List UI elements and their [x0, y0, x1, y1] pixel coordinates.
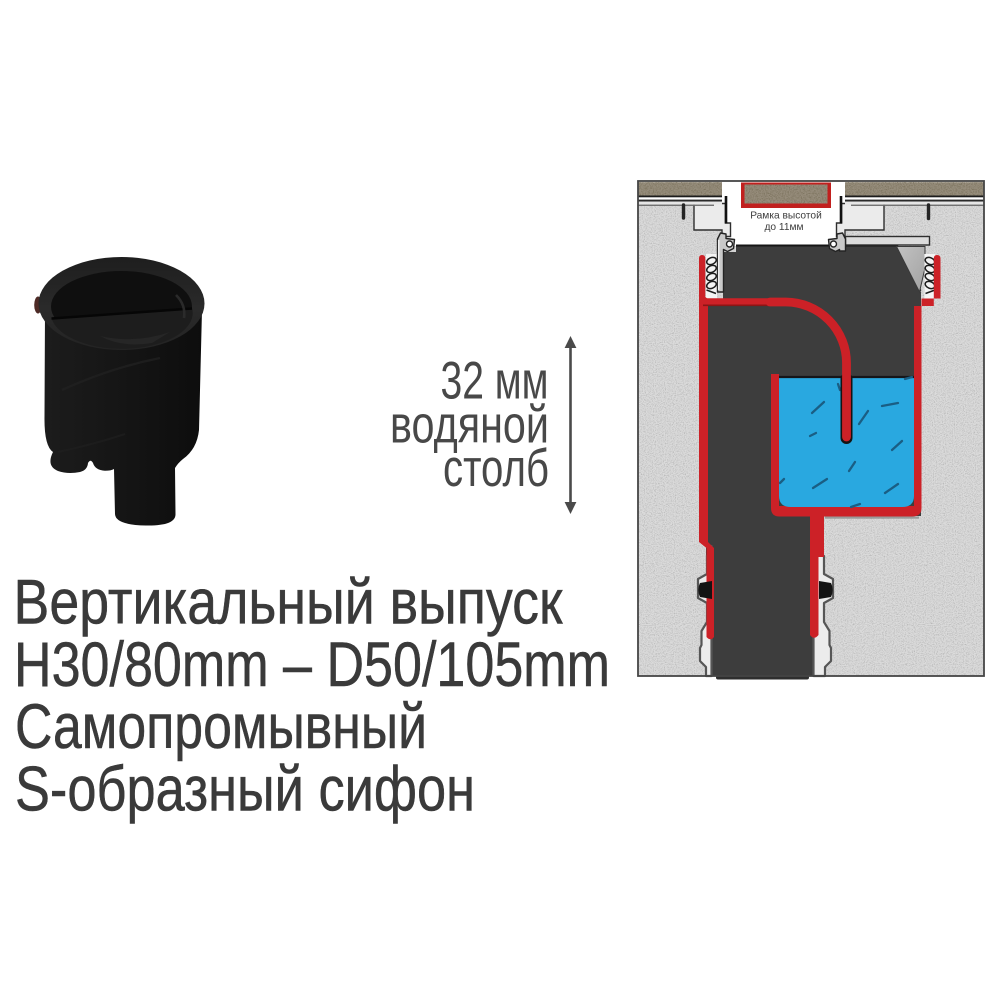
svg-text:S-образный сифон: S-образный сифон	[15, 755, 475, 825]
svg-text:столб: столб	[443, 439, 549, 498]
svg-text:H30/80mm – D50/105mm: H30/80mm – D50/105mm	[14, 630, 610, 700]
svg-text:до 11мм: до 11мм	[764, 222, 803, 233]
svg-text:Рамка высотой: Рамка высотой	[750, 211, 822, 222]
svg-text:Вертикальный выпуск: Вертикальный выпуск	[14, 567, 563, 637]
svg-text:Самопромывный: Самопромывный	[15, 692, 427, 762]
